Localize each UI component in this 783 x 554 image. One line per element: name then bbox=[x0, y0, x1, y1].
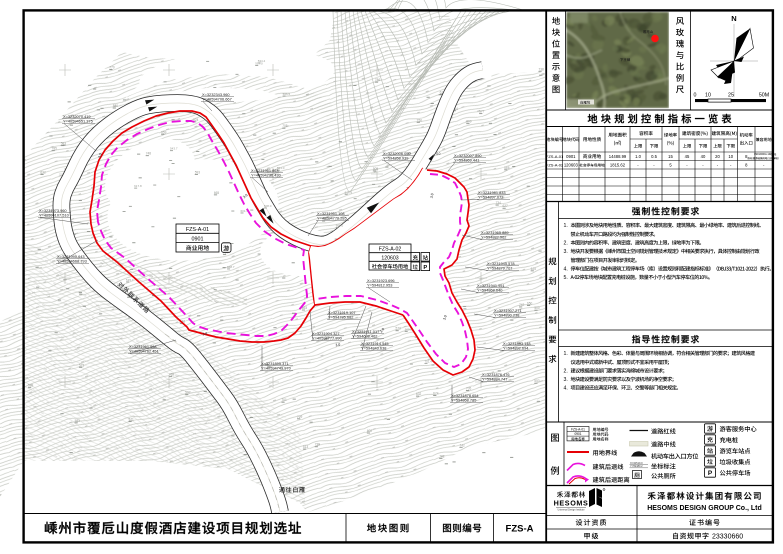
svg-text:750: 750 bbox=[417, 118, 423, 122]
svg-text:FZS-A-02: FZS-A-02 bbox=[546, 163, 564, 168]
svg-text:588: 588 bbox=[28, 384, 34, 388]
svg-text:Y=40594749.970: Y=40594749.970 bbox=[261, 366, 292, 371]
svg-text:4.0: 4.0 bbox=[436, 152, 441, 156]
svg-text:Y=40594706.667: Y=40594706.667 bbox=[202, 97, 232, 102]
svg-text:Y=594868.785: Y=594868.785 bbox=[451, 398, 476, 403]
svg-text:Y=594868.640: Y=594868.640 bbox=[477, 288, 503, 293]
svg-text:751.4: 751.4 bbox=[424, 359, 432, 363]
svg-text:Y=594858.939: Y=594858.939 bbox=[383, 156, 408, 161]
svg-text:0.5: 0.5 bbox=[651, 154, 657, 159]
svg-text:Y=594785.682: Y=594785.682 bbox=[328, 315, 353, 320]
svg-text:577: 577 bbox=[479, 110, 485, 114]
svg-text:742: 742 bbox=[519, 303, 525, 307]
svg-text:FZS-A: FZS-A bbox=[506, 524, 534, 535]
svg-text:HESOMS DESIGN GROUP Co., Ltd: HESOMS DESIGN GROUP Co., Ltd bbox=[647, 505, 762, 512]
svg-text:627: 627 bbox=[502, 204, 508, 208]
svg-text:Y=594638.462: Y=594638.462 bbox=[352, 334, 377, 339]
svg-text:702: 702 bbox=[439, 454, 445, 458]
svg-text:785: 785 bbox=[52, 147, 58, 151]
svg-text:40: 40 bbox=[701, 154, 706, 159]
svg-text:553: 553 bbox=[534, 379, 540, 383]
svg-text:770: 770 bbox=[109, 65, 115, 69]
svg-text:4.: 4. bbox=[564, 386, 568, 392]
svg-text:FZS-A-02: FZS-A-02 bbox=[379, 247, 402, 253]
svg-text:25: 25 bbox=[728, 93, 734, 99]
svg-text:1.0: 1.0 bbox=[635, 154, 641, 159]
svg-text:0901: 0901 bbox=[574, 432, 581, 436]
svg-text:10: 10 bbox=[728, 154, 733, 159]
svg-text:Y=40594651.375: Y=40594651.375 bbox=[63, 119, 93, 124]
svg-text:45: 45 bbox=[685, 154, 690, 159]
svg-text:14488.99: 14488.99 bbox=[609, 154, 627, 159]
svg-text:120603: 120603 bbox=[564, 163, 579, 168]
svg-text:608.0: 608.0 bbox=[336, 224, 344, 228]
svg-text:Y=40594668.793: Y=40594668.793 bbox=[57, 259, 87, 264]
svg-text:1.: 1. bbox=[564, 223, 568, 229]
svg-text:0: 0 bbox=[694, 93, 697, 99]
svg-text:659: 659 bbox=[161, 130, 167, 134]
svg-text:Y=594879.707: Y=594879.707 bbox=[487, 266, 512, 271]
svg-text:2.: 2. bbox=[564, 369, 568, 375]
svg-text:508.0: 508.0 bbox=[264, 204, 272, 208]
svg-text:759: 759 bbox=[169, 373, 175, 377]
svg-text:566: 566 bbox=[504, 166, 510, 170]
svg-text:632: 632 bbox=[40, 171, 46, 175]
svg-text:592: 592 bbox=[185, 391, 191, 395]
svg-text:Y=594897.072: Y=594897.072 bbox=[478, 195, 503, 200]
svg-text:543.7: 543.7 bbox=[170, 147, 178, 151]
svg-text:Y=40594107.510: Y=40594107.510 bbox=[39, 213, 70, 218]
svg-text:120603: 120603 bbox=[381, 255, 398, 261]
svg-text:Universal Design Institute: Universal Design Institute bbox=[557, 508, 585, 511]
svg-text:701: 701 bbox=[281, 398, 287, 402]
svg-text:571: 571 bbox=[128, 418, 134, 422]
svg-text:617.8: 617.8 bbox=[134, 184, 142, 188]
svg-text:3.: 3. bbox=[564, 249, 568, 255]
svg-text:632: 632 bbox=[416, 392, 422, 396]
svg-text:566.5: 566.5 bbox=[283, 92, 291, 96]
svg-text:738: 738 bbox=[538, 67, 544, 71]
svg-text:5.: 5. bbox=[564, 275, 568, 281]
svg-text:530: 530 bbox=[113, 104, 119, 108]
svg-text:625: 625 bbox=[531, 267, 537, 271]
svg-text:515.7: 515.7 bbox=[126, 278, 134, 282]
svg-text:705: 705 bbox=[282, 124, 288, 128]
svg-text:Y=40594777.990: Y=40594777.990 bbox=[312, 336, 343, 341]
svg-text:Y=594892.694: Y=594892.694 bbox=[503, 346, 529, 351]
svg-text:786: 786 bbox=[375, 78, 381, 82]
svg-text:50M: 50M bbox=[759, 93, 769, 99]
svg-text:Y=594882.962: Y=594882.962 bbox=[481, 235, 506, 240]
svg-text:729: 729 bbox=[315, 443, 321, 447]
svg-text:Y=594812.953: Y=594812.953 bbox=[367, 283, 392, 288]
svg-text:X=32519.0: X=32519.0 bbox=[630, 461, 643, 465]
svg-text:513: 513 bbox=[303, 445, 309, 449]
svg-text:Y=594884.747: Y=594884.747 bbox=[482, 377, 507, 382]
svg-text:593: 593 bbox=[195, 170, 201, 174]
svg-text:P: P bbox=[423, 265, 427, 271]
svg-text:509: 509 bbox=[373, 167, 379, 171]
svg-text:Y=594869.441: Y=594869.441 bbox=[454, 158, 479, 163]
svg-text:705: 705 bbox=[466, 386, 472, 390]
svg-text:1.: 1. bbox=[564, 351, 568, 357]
svg-text:FZS-A-01: FZS-A-01 bbox=[571, 427, 585, 431]
svg-text:4.: 4. bbox=[564, 267, 568, 273]
svg-text:742: 742 bbox=[459, 443, 465, 447]
svg-text:650: 650 bbox=[527, 301, 533, 305]
svg-text:699: 699 bbox=[466, 120, 472, 124]
svg-text:548.7: 548.7 bbox=[227, 265, 235, 269]
svg-text:Y=40594736.430: Y=40594736.430 bbox=[251, 173, 282, 178]
svg-text:FZS-A-01: FZS-A-01 bbox=[546, 154, 564, 159]
svg-text:3.: 3. bbox=[564, 377, 568, 383]
svg-text:Y=594843.638: Y=594843.638 bbox=[361, 346, 386, 351]
svg-text:665: 665 bbox=[214, 191, 220, 195]
svg-text:573: 573 bbox=[396, 327, 402, 331]
svg-text:729: 729 bbox=[297, 415, 303, 419]
svg-text:616.9: 616.9 bbox=[345, 190, 353, 194]
svg-text:P: P bbox=[708, 470, 713, 477]
svg-text:20: 20 bbox=[715, 154, 720, 159]
svg-text:Y=59480.2: Y=59480.2 bbox=[630, 464, 643, 468]
svg-text:15: 15 bbox=[668, 154, 673, 159]
svg-text:500: 500 bbox=[534, 306, 540, 310]
svg-text:Y=40594762.451: Y=40594762.451 bbox=[129, 349, 159, 354]
svg-text:734: 734 bbox=[496, 201, 502, 205]
svg-text:FZS-A-01: FZS-A-01 bbox=[186, 227, 209, 233]
svg-text:602: 602 bbox=[367, 429, 373, 433]
svg-text:1815.62: 1815.62 bbox=[610, 163, 626, 168]
svg-text:HESOMS: HESOMS bbox=[554, 499, 589, 508]
svg-text:674: 674 bbox=[433, 392, 439, 396]
svg-text:2.: 2. bbox=[564, 241, 568, 247]
svg-text:748: 748 bbox=[146, 152, 152, 156]
svg-text:0901: 0901 bbox=[566, 154, 576, 159]
svg-text:571: 571 bbox=[79, 363, 85, 367]
svg-text:583: 583 bbox=[75, 419, 81, 423]
svg-text:10: 10 bbox=[705, 93, 711, 99]
svg-text:0901: 0901 bbox=[192, 236, 204, 242]
svg-text:Y=594890.238: Y=594890.238 bbox=[494, 313, 519, 318]
svg-text:Y=40594770.285: Y=40594770.285 bbox=[317, 216, 347, 221]
svg-text:23330660: 23330660 bbox=[712, 534, 743, 541]
svg-text:N: N bbox=[731, 14, 736, 23]
svg-text:534.4: 534.4 bbox=[258, 59, 266, 63]
